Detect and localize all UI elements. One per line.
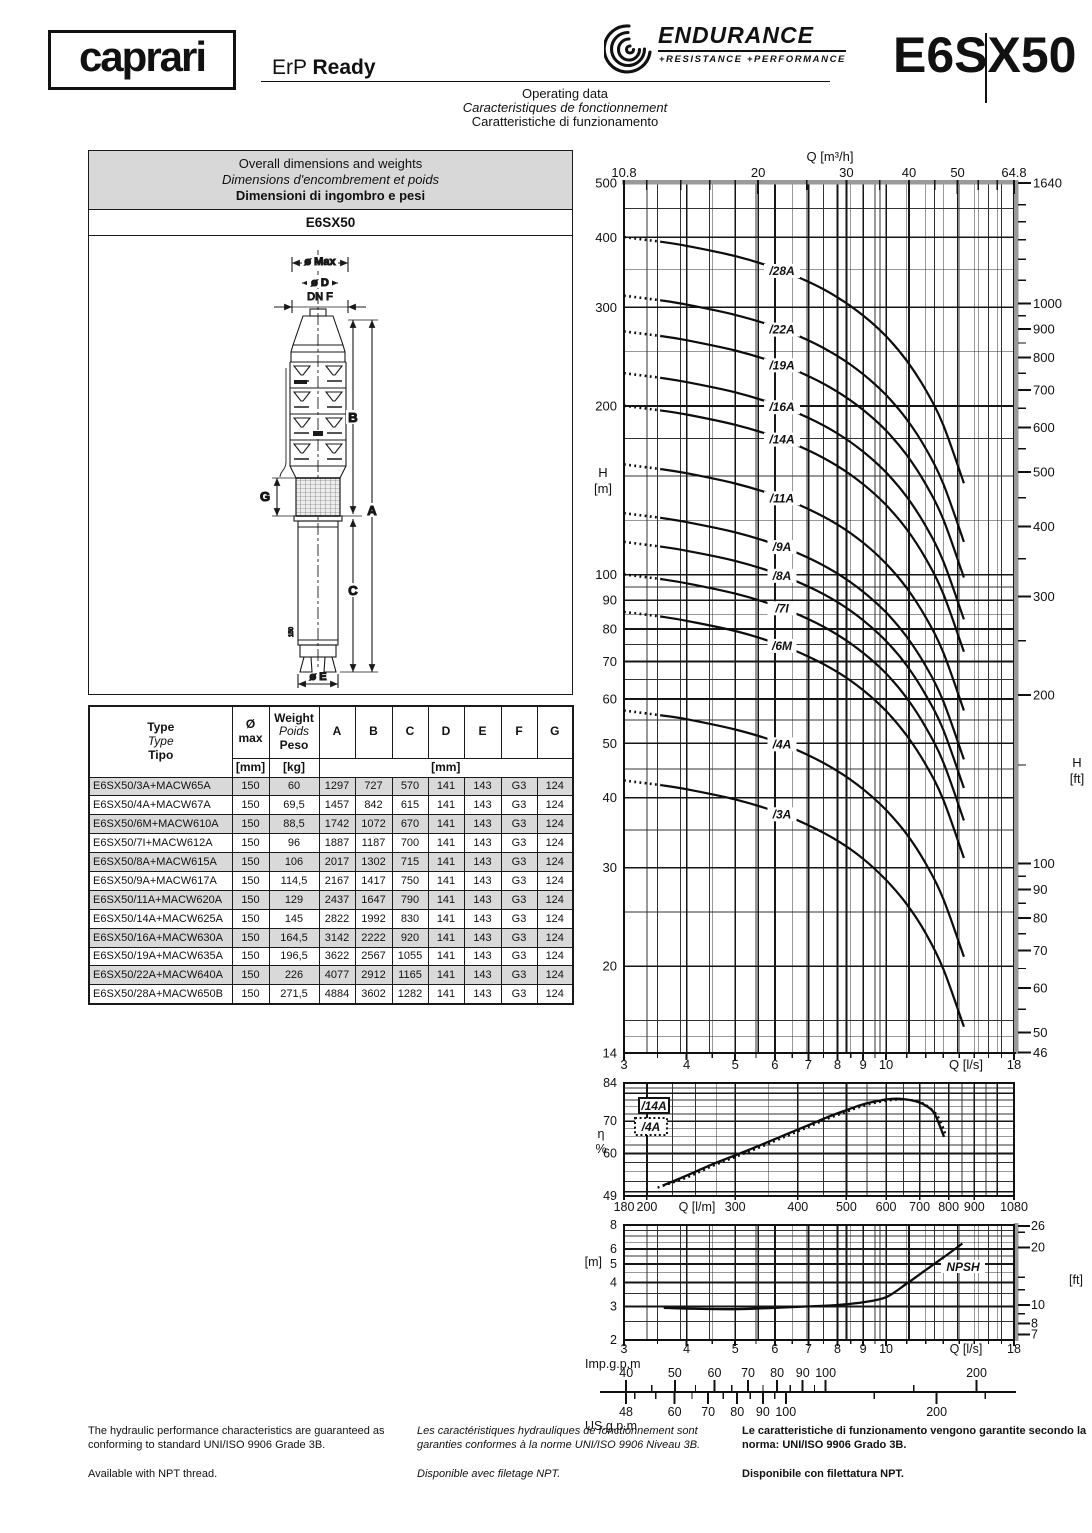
value-cell: 143 [464, 871, 501, 890]
svg-text:200: 200 [595, 398, 617, 413]
svg-text:60: 60 [668, 1405, 682, 1419]
value-cell: 2912 [355, 966, 392, 985]
value-cell: 2222 [355, 928, 392, 947]
svg-text:80: 80 [1033, 910, 1047, 925]
svg-text:20: 20 [603, 959, 617, 974]
value-cell: 143 [464, 815, 501, 834]
value-cell: 1187 [355, 834, 392, 853]
dimensions-box: Overall dimensions and weights Dimension… [88, 150, 573, 695]
svg-text:10: 10 [879, 1342, 893, 1356]
value-cell: 1055 [392, 947, 428, 966]
svg-text:800: 800 [938, 1200, 959, 1214]
value-cell: 150 [232, 947, 269, 966]
value-cell: 124 [537, 796, 573, 815]
svg-text:500: 500 [595, 176, 617, 191]
svg-text:100: 100 [815, 1366, 836, 1380]
svg-text:100: 100 [595, 567, 617, 582]
svg-text:5: 5 [732, 1057, 739, 1072]
value-cell: 150 [232, 909, 269, 928]
value-cell: 570 [392, 777, 428, 796]
unit-mm: [mm] [232, 758, 269, 777]
value-cell: 271,5 [269, 985, 319, 1004]
value-cell: 1992 [355, 909, 392, 928]
svg-text:70: 70 [603, 1114, 617, 1128]
value-cell: 88,5 [269, 815, 319, 834]
value-cell: 164,5 [269, 928, 319, 947]
svg-text:4: 4 [610, 1276, 617, 1290]
value-cell: 830 [392, 909, 428, 928]
svg-text:400: 400 [787, 1200, 808, 1214]
svg-text:40: 40 [603, 790, 617, 805]
svg-text:90: 90 [1033, 882, 1047, 897]
value-cell: 124 [537, 815, 573, 834]
value-cell: 124 [537, 853, 573, 872]
svg-text:8: 8 [834, 1057, 841, 1072]
svg-text:[ft]: [ft] [1070, 771, 1084, 786]
svg-text:2: 2 [610, 1333, 617, 1347]
value-cell: 3602 [355, 985, 392, 1004]
svg-text:Q [l/m]: Q [l/m] [679, 1200, 716, 1214]
svg-text:9: 9 [860, 1057, 867, 1072]
svg-text:5: 5 [610, 1257, 617, 1271]
value-cell: 670 [392, 815, 428, 834]
value-cell: 2437 [319, 890, 355, 909]
value-cell: 145 [269, 909, 319, 928]
svg-text:Q [l/s]: Q [l/s] [950, 1342, 983, 1356]
svg-text:[m]: [m] [585, 1255, 602, 1269]
type-cell: E6SX50/22A+MACW640A [89, 966, 232, 985]
value-cell: 143 [464, 834, 501, 853]
dimensions-box-model: E6SX50 [89, 210, 572, 236]
svg-text:3: 3 [620, 1057, 627, 1072]
svg-text:50: 50 [1033, 1025, 1047, 1040]
value-cell: 143 [464, 966, 501, 985]
svg-text:H: H [1072, 755, 1081, 770]
svg-text:4: 4 [683, 1342, 690, 1356]
value-cell: 141 [428, 853, 464, 872]
svg-text:1000: 1000 [1033, 296, 1062, 311]
value-cell: 143 [464, 853, 501, 872]
svg-text:300: 300 [725, 1200, 746, 1214]
value-cell: 124 [537, 985, 573, 1004]
value-cell: 196,5 [269, 947, 319, 966]
svg-text:/4A: /4A [641, 1120, 661, 1134]
svg-text:700: 700 [1033, 383, 1055, 398]
value-cell: 1742 [319, 815, 355, 834]
spec-table-body: E6SX50/3A+MACW65A150601297727570141143G3… [89, 777, 573, 1004]
performance-charts: Q [m³/h]10.82030405064.85004003002001009… [585, 149, 1085, 1433]
svg-text:200: 200 [1033, 688, 1055, 703]
table-row: E6SX50/16A+MACW630A150164,53142222292014… [89, 928, 573, 947]
value-cell: G3 [501, 853, 537, 872]
value-cell: 150 [232, 890, 269, 909]
svg-text:70: 70 [1033, 943, 1047, 958]
value-cell: 700 [392, 834, 428, 853]
svg-text:700: 700 [909, 1200, 930, 1214]
value-cell: 141 [428, 777, 464, 796]
svg-text:[ft]: [ft] [1069, 1273, 1083, 1287]
table-row: E6SX50/4A+MACW67A15069,51457842615141143… [89, 796, 573, 815]
svg-text:6: 6 [771, 1057, 778, 1072]
value-cell: 141 [428, 947, 464, 966]
col-header-G: G [537, 706, 573, 758]
svg-text:/8A: /8A [772, 569, 792, 583]
svg-text:26: 26 [1031, 1219, 1045, 1233]
svg-text:4: 4 [683, 1057, 690, 1072]
svg-text:H: H [598, 465, 607, 480]
svg-text:800: 800 [1033, 350, 1055, 365]
value-cell: 69,5 [269, 796, 319, 815]
value-cell: G3 [501, 796, 537, 815]
unit-kg: [kg] [269, 758, 319, 777]
value-cell: 143 [464, 777, 501, 796]
svg-text:500: 500 [836, 1200, 857, 1214]
value-cell: 1417 [355, 871, 392, 890]
svg-text:200: 200 [926, 1405, 947, 1419]
value-cell: 141 [428, 890, 464, 909]
header-rule [261, 81, 830, 82]
svg-text:40: 40 [902, 165, 916, 180]
value-cell: 143 [464, 985, 501, 1004]
value-cell: 1282 [392, 985, 428, 1004]
svg-text:6: 6 [610, 1242, 617, 1256]
svg-text:18: 18 [1007, 1057, 1021, 1072]
svg-text:3: 3 [610, 1299, 617, 1313]
svg-text:60: 60 [603, 691, 617, 706]
value-cell: 226 [269, 966, 319, 985]
value-cell: 124 [537, 890, 573, 909]
value-cell: 96 [269, 834, 319, 853]
svg-text:/28A: /28A [768, 264, 794, 278]
svg-text:60: 60 [603, 1147, 617, 1161]
type-cell: E6SX50/7I+MACW612A [89, 834, 232, 853]
table-row: E6SX50/3A+MACW65A150601297727570141143G3… [89, 777, 573, 796]
svg-text:600: 600 [876, 1200, 897, 1214]
value-cell: 2567 [355, 947, 392, 966]
endurance-spiral-icon [604, 22, 652, 80]
value-cell: 615 [392, 796, 428, 815]
svg-text:Imp.g.p.m: Imp.g.p.m [585, 1357, 641, 1371]
caprari-logo-text: caprari [79, 36, 205, 78]
svg-text:70: 70 [603, 654, 617, 669]
value-cell: G3 [501, 777, 537, 796]
value-cell: 150 [232, 796, 269, 815]
svg-text:/6M: /6M [771, 639, 793, 653]
svg-text:50: 50 [668, 1366, 682, 1380]
value-cell: 141 [428, 966, 464, 985]
svg-text:7: 7 [805, 1057, 812, 1072]
value-cell: G3 [501, 928, 537, 947]
value-cell: 143 [464, 796, 501, 815]
endurance-tagline: +RESISTANCE +PERFORMANCE [658, 54, 846, 65]
value-cell: 124 [537, 834, 573, 853]
col-header-F: F [501, 706, 537, 758]
value-cell: 3622 [319, 947, 355, 966]
svg-text:80: 80 [730, 1405, 744, 1419]
svg-text:Q [m³/h]: Q [m³/h] [807, 149, 854, 164]
svg-text:18: 18 [1007, 1342, 1021, 1356]
svg-text:40: 40 [619, 1366, 633, 1380]
value-cell: 143 [464, 890, 501, 909]
svg-text:7: 7 [1031, 1328, 1038, 1342]
value-cell: 150 [232, 985, 269, 1004]
value-cell: 1457 [319, 796, 355, 815]
value-cell: 1165 [392, 966, 428, 985]
svg-text:400: 400 [595, 230, 617, 245]
value-cell: 1887 [319, 834, 355, 853]
value-cell: 129 [269, 890, 319, 909]
caprari-logo: caprari [48, 30, 236, 90]
value-cell: 141 [428, 871, 464, 890]
value-cell: 143 [464, 947, 501, 966]
svg-text:5: 5 [732, 1342, 739, 1356]
svg-text:30: 30 [839, 165, 853, 180]
value-cell: 124 [537, 909, 573, 928]
spec-table: Type Type Tipo Ø max Weight Poids Peso A [88, 705, 574, 1005]
svg-text:/11A: /11A [769, 491, 794, 505]
table-row: E6SX50/11A+MACW620A150129243716477901411… [89, 890, 573, 909]
svg-text:9: 9 [860, 1342, 867, 1356]
svg-text:10: 10 [879, 1057, 893, 1072]
value-cell: 143 [464, 928, 501, 947]
value-cell: 842 [355, 796, 392, 815]
erp-ready-label: ErP Ready [272, 56, 376, 80]
svg-text:64.8: 64.8 [1001, 165, 1026, 180]
svg-text:500: 500 [1033, 465, 1055, 480]
footer-note-en: The hydraulic performance characteristic… [88, 1424, 410, 1495]
svg-text:20: 20 [1031, 1241, 1045, 1255]
value-cell: 790 [392, 890, 428, 909]
value-cell: 2167 [319, 871, 355, 890]
svg-text:/14A: /14A [768, 433, 794, 447]
operating-data-subtitle: Operating data Caracteristiques de fonct… [415, 87, 715, 129]
value-cell: 150 [232, 834, 269, 853]
svg-text:90: 90 [603, 593, 617, 608]
value-cell: 727 [355, 777, 392, 796]
svg-text:30: 30 [603, 860, 617, 875]
value-cell: G3 [501, 834, 537, 853]
value-cell: G3 [501, 890, 537, 909]
svg-text:90: 90 [756, 1405, 770, 1419]
value-cell: 124 [537, 871, 573, 890]
endurance-wordmark: ENDURANCE [658, 22, 846, 52]
value-cell: 150 [232, 871, 269, 890]
value-cell: 150 [232, 966, 269, 985]
model-divider-line [985, 33, 987, 103]
svg-text:84: 84 [603, 1076, 617, 1090]
value-cell: 141 [428, 834, 464, 853]
svg-text:900: 900 [964, 1200, 985, 1214]
svg-text:80: 80 [603, 621, 617, 636]
svg-text:300: 300 [595, 300, 617, 315]
svg-text:η: η [598, 1127, 605, 1141]
value-cell: 141 [428, 909, 464, 928]
svg-text:Q [l/s]: Q [l/s] [949, 1057, 983, 1072]
endurance-logo: ENDURANCE +RESISTANCE +PERFORMANCE [604, 22, 846, 80]
table-row: E6SX50/22A+MACW640A150226407729121165141… [89, 966, 573, 985]
value-cell: 141 [428, 985, 464, 1004]
svg-text:14: 14 [603, 1046, 617, 1061]
value-cell: 715 [392, 853, 428, 872]
svg-text:100: 100 [775, 1405, 796, 1419]
footer-note-it: Le caratteristiche di funzionamento veng… [742, 1424, 1087, 1495]
value-cell: G3 [501, 985, 537, 1004]
type-cell: E6SX50/11A+MACW620A [89, 890, 232, 909]
svg-text:48: 48 [619, 1405, 633, 1419]
value-cell: 1072 [355, 815, 392, 834]
value-cell: G3 [501, 947, 537, 966]
svg-text:/3A: /3A [772, 807, 792, 821]
svg-text:50: 50 [950, 165, 964, 180]
col-header-type: Type Type Tipo [89, 706, 232, 777]
value-cell: 141 [428, 815, 464, 834]
svg-text:/22A: /22A [768, 323, 794, 337]
value-cell: 1647 [355, 890, 392, 909]
dimensions-box-title: Overall dimensions and weights Dimension… [89, 151, 572, 210]
svg-text:70: 70 [701, 1405, 715, 1419]
type-cell: E6SX50/14A+MACW625A [89, 909, 232, 928]
svg-text:60: 60 [1033, 980, 1047, 995]
svg-text:/19A: /19A [768, 358, 794, 372]
svg-text:6: 6 [771, 1342, 778, 1356]
svg-text:49: 49 [603, 1189, 617, 1203]
value-cell: 2017 [319, 853, 355, 872]
table-row: E6SX50/8A+MACW615A1501062017130271514114… [89, 853, 573, 872]
type-cell: E6SX50/3A+MACW65A [89, 777, 232, 796]
svg-text:10.8: 10.8 [611, 165, 636, 180]
table-row: E6SX50/6M+MACW610A15088,5174210726701411… [89, 815, 573, 834]
svg-text:20: 20 [751, 165, 765, 180]
col-header-dmax: Ø max [232, 706, 269, 758]
col-header-A: A [319, 706, 355, 758]
svg-text:/7I: /7I [774, 601, 789, 615]
svg-text:90: 90 [796, 1366, 810, 1380]
svg-text:8: 8 [1031, 1317, 1038, 1331]
svg-text:200: 200 [637, 1200, 658, 1214]
svg-text:/14A: /14A [640, 1099, 666, 1113]
table-row: E6SX50/28A+MACW650B150271,54884360212821… [89, 985, 573, 1004]
svg-text:300: 300 [1033, 589, 1055, 604]
value-cell: 150 [232, 815, 269, 834]
table-row: E6SX50/9A+MACW617A150114,521671417750141… [89, 871, 573, 890]
svg-text:70: 70 [741, 1366, 755, 1380]
svg-text:46: 46 [1033, 1045, 1047, 1060]
svg-text:8: 8 [610, 1218, 617, 1232]
value-cell: 141 [428, 796, 464, 815]
value-cell: G3 [501, 966, 537, 985]
svg-text:10: 10 [1031, 1298, 1045, 1312]
svg-text:50: 50 [603, 736, 617, 751]
value-cell: G3 [501, 871, 537, 890]
value-cell: 920 [392, 928, 428, 947]
value-cell: 124 [537, 928, 573, 947]
svg-text:60: 60 [708, 1366, 722, 1380]
value-cell: 114,5 [269, 871, 319, 890]
value-cell: 750 [392, 871, 428, 890]
table-row: E6SX50/14A+MACW625A150145282219928301411… [89, 909, 573, 928]
value-cell: 2822 [319, 909, 355, 928]
svg-text:7: 7 [805, 1342, 812, 1356]
value-cell: 4077 [319, 966, 355, 985]
col-header-C: C [392, 706, 428, 758]
type-cell: E6SX50/19A+MACW635A [89, 947, 232, 966]
type-cell: E6SX50/6M+MACW610A [89, 815, 232, 834]
value-cell: 150 [232, 853, 269, 872]
col-header-D: D [428, 706, 464, 758]
type-cell: E6SX50/9A+MACW617A [89, 871, 232, 890]
svg-text:400: 400 [1033, 519, 1055, 534]
col-header-weight: Weight Poids Peso [269, 706, 319, 758]
svg-text:/4A: /4A [772, 737, 792, 751]
svg-text:NPSH: NPSH [946, 1260, 980, 1274]
svg-text:100: 100 [1033, 856, 1055, 871]
value-cell: G3 [501, 909, 537, 928]
footer-note-fr: Les caractéristiques hydrauliques de fon… [417, 1424, 735, 1495]
type-cell: E6SX50/16A+MACW630A [89, 928, 232, 947]
value-cell: 3142 [319, 928, 355, 947]
svg-text:600: 600 [1033, 420, 1055, 435]
svg-text:8: 8 [834, 1342, 841, 1356]
value-cell: 143 [464, 909, 501, 928]
col-header-B: B [355, 706, 392, 758]
svg-text:1640: 1640 [1033, 176, 1062, 191]
col-header-E: E [464, 706, 501, 758]
table-row: E6SX50/7I+MACW612A1509618871187700141143… [89, 834, 573, 853]
svg-text:900: 900 [1033, 322, 1055, 337]
value-cell: 150 [232, 928, 269, 947]
value-cell: 124 [537, 777, 573, 796]
svg-text:80: 80 [770, 1366, 784, 1380]
value-cell: 60 [269, 777, 319, 796]
unit-mm-span: [mm] [319, 758, 573, 777]
svg-text:200: 200 [966, 1366, 987, 1380]
value-cell: 124 [537, 966, 573, 985]
datasheet-page: caprari ErP Ready ENDURANCE +RESISTANCE … [0, 0, 1092, 1533]
value-cell: G3 [501, 815, 537, 834]
value-cell: 106 [269, 853, 319, 872]
svg-text:[m]: [m] [594, 481, 612, 496]
value-cell: 4884 [319, 985, 355, 1004]
value-cell: 141 [428, 928, 464, 947]
svg-text:180: 180 [614, 1200, 635, 1214]
type-cell: E6SX50/8A+MACW615A [89, 853, 232, 872]
svg-text:1080: 1080 [1000, 1200, 1028, 1214]
type-cell: E6SX50/4A+MACW67A [89, 796, 232, 815]
value-cell: 124 [537, 947, 573, 966]
value-cell: 1297 [319, 777, 355, 796]
value-cell: 150 [232, 777, 269, 796]
svg-text:%: % [595, 1142, 606, 1156]
svg-text:/16A: /16A [768, 400, 794, 414]
table-row: E6SX50/19A+MACW635A150196,53622256710551… [89, 947, 573, 966]
svg-text:3: 3 [621, 1342, 628, 1356]
svg-text:/9A: /9A [772, 540, 792, 554]
type-cell: E6SX50/28A+MACW650B [89, 985, 232, 1004]
value-cell: 1302 [355, 853, 392, 872]
